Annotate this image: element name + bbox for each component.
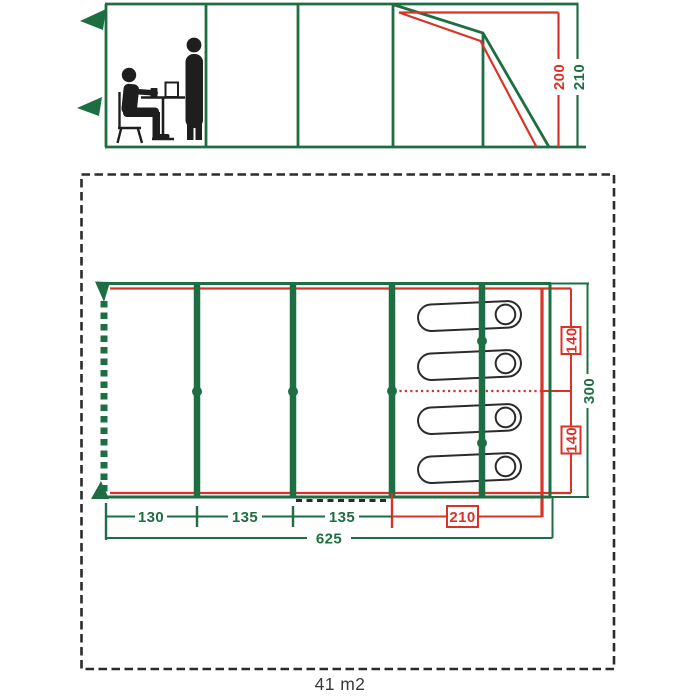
pole-joint-dot [192,387,202,397]
awning-flag-icon [77,97,102,116]
people-at-table-icon [118,38,204,143]
footprint-dashed-border [82,175,615,670]
dim-label-total-height: 210 [571,64,588,90]
diagram-canvas: 200 210 [0,0,700,700]
pole-joint-dot [387,386,397,396]
sleeping-bag-icon [417,301,521,332]
side-elevation-view: 200 210 [77,4,588,147]
tent-dimensions-diagram: 200 210 [0,0,700,700]
dim-label-bed-width-1: 140 [563,327,580,353]
pole-joint-dot [477,438,487,448]
dim-label-segment-1: 130 [138,509,164,526]
person-standing-icon [186,38,204,140]
elevation-dim-total-height: 210 [571,4,588,147]
dim-label-bed-width-2: 140 [563,427,580,453]
door-corner-flag-icon [95,282,110,303]
dim-label-peak-height: 200 [551,64,568,90]
dim-label-total-length: 625 [316,530,342,547]
dim-label-segment-2: 135 [232,509,258,526]
pole-joint-dot [288,387,298,397]
dim-label-floor-width: 300 [581,378,598,404]
sleeping-bag-icon [417,453,521,484]
sleeping-bag-icon [417,350,521,381]
cup-icon [151,88,158,97]
pole-joint-dot [477,336,487,346]
box-on-table-icon [166,83,179,98]
floor-area-label: 41 m2 [315,674,366,694]
dim-label-bedroom-length: 210 [449,509,475,526]
dim-label-segment-3: 135 [329,509,355,526]
elevation-dim-peak-height: 200 [551,13,568,148]
awning-flag-icon [80,9,106,30]
floor-plan-view: 140 140 300 130 135 135 21 [82,175,615,695]
sleeping-bag-icon [417,404,521,435]
